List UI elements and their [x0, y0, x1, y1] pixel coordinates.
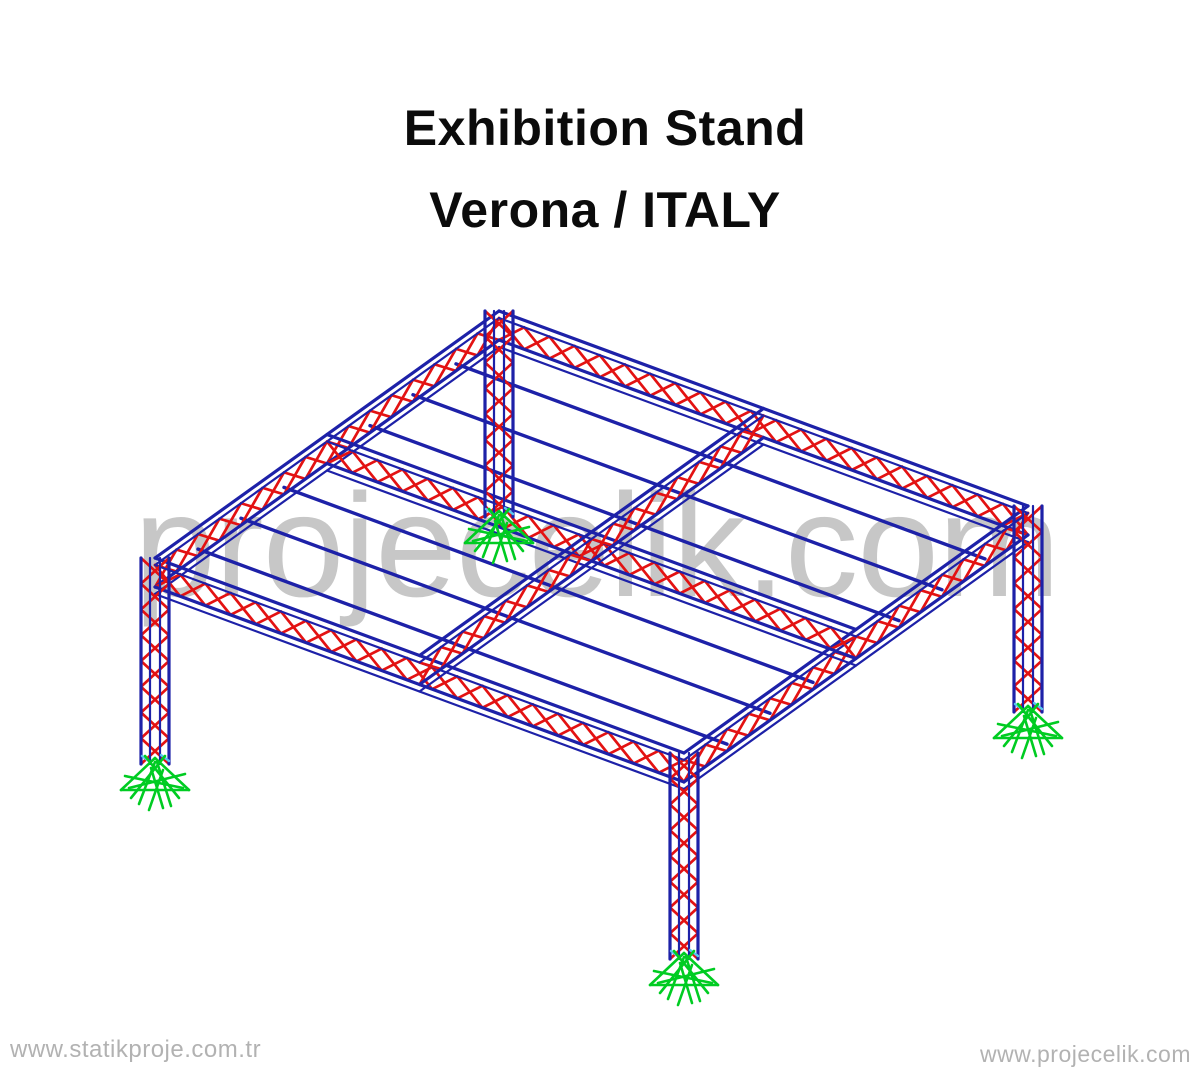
- column-left: [141, 558, 169, 764]
- roof-truss-front-left-edge: [155, 558, 684, 789]
- page-background: Exhibition Stand Verona / ITALY projecel…: [0, 0, 1200, 1082]
- structure-model-canvas: [0, 0, 1200, 1082]
- roof-truss-interior-longitudinal: [327, 435, 856, 666]
- footer-left-url: www.statikproje.com.tr: [10, 1036, 261, 1064]
- roof-truss-back-right-edge: [499, 311, 1028, 542]
- column-front: [670, 753, 698, 959]
- roof-truss-front-right-edge: [684, 506, 1028, 789]
- footer-right-url: www.projecelik.com: [980, 1041, 1191, 1068]
- support-left: [121, 756, 189, 810]
- support-front: [650, 951, 718, 1005]
- support-right: [994, 704, 1062, 758]
- roof-purlins: [198, 364, 985, 744]
